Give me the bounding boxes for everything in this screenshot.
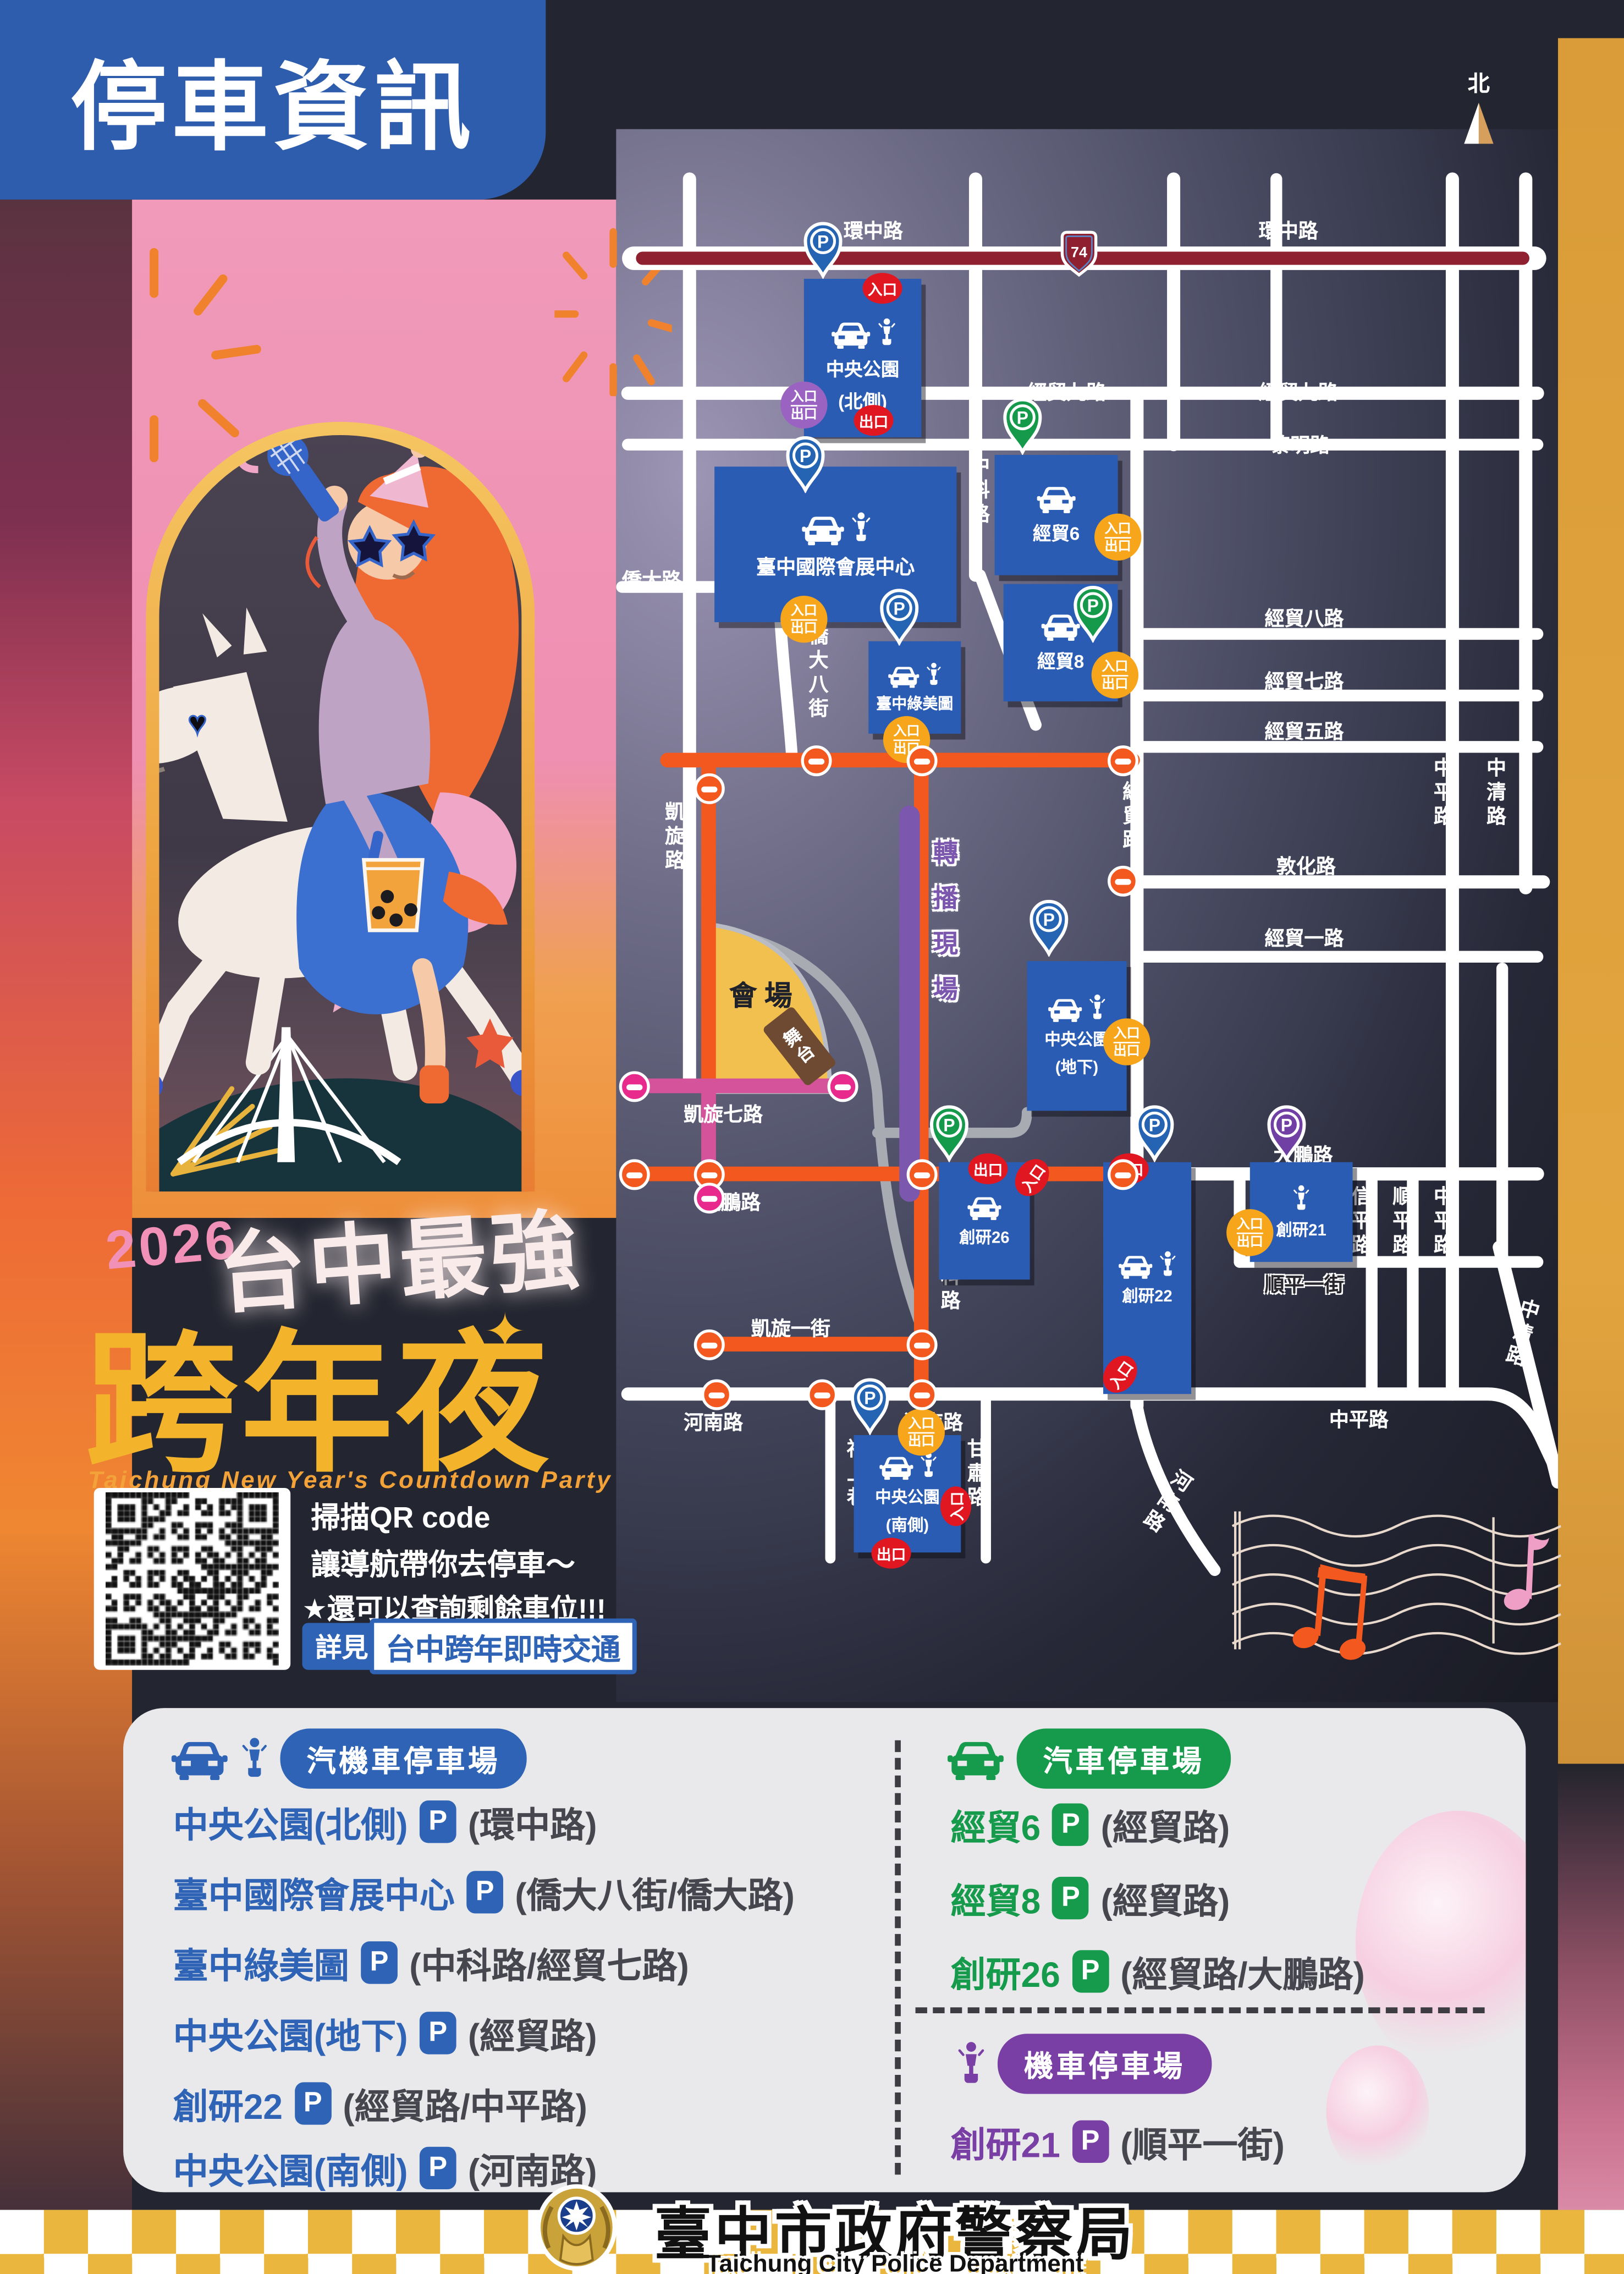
legend-item: 中央公園(地下) P (經貿路) (173, 2007, 597, 2058)
road-label: 河南路 (684, 1406, 743, 1435)
road-label: 環中路 (844, 214, 903, 243)
road-label: 中平路 (1426, 1185, 1455, 1258)
legend-divider-horizontal (916, 2007, 1485, 2013)
newyear-illustration: ♥ (132, 200, 616, 1218)
north-indicator: 北 (1452, 68, 1505, 151)
parking-pin-blue: P (848, 1376, 892, 1435)
footer-organization-en: Taichung City Police Department (616, 2251, 1174, 2274)
broadcast-label: 轉播現場 (924, 839, 961, 1021)
right-gold-band (1558, 38, 1624, 1764)
road-label: 中平路 (1329, 1403, 1389, 1432)
scooter-icon (926, 661, 942, 688)
pink-blob (1356, 1811, 1526, 2075)
rider-boot (420, 1065, 449, 1103)
scooter-icon (240, 1735, 268, 1782)
road-label: 中科路 (962, 455, 992, 528)
entrance-badge: 入口 (863, 273, 902, 304)
p-badge: P (420, 1800, 456, 1843)
svg-text:P: P (817, 232, 829, 251)
svg-text:P: P (1149, 1115, 1160, 1135)
map-roads (616, 129, 1558, 1702)
svg-text:P: P (864, 1388, 876, 1408)
qr-instruction-1: 掃描QR code (311, 1494, 491, 1536)
no-entry-pink-icon (694, 1183, 725, 1213)
road-label: 凱旋七路 (684, 1097, 763, 1127)
svg-text:P: P (1087, 596, 1099, 616)
legend-item: 創研21 P (順平一街) (951, 2116, 1285, 2167)
scooter-icon (956, 2039, 986, 2089)
firework-small-icon (282, 220, 378, 326)
exit-badge: 出口 (854, 405, 894, 436)
parking-pin-blue: P (877, 587, 921, 646)
car-icon (878, 1454, 913, 1481)
road-label: 經貿路 (1115, 781, 1144, 853)
no-entry-icon (907, 1380, 938, 1410)
scooter-icon (1159, 1249, 1176, 1278)
pink-note-icon (1501, 1535, 1549, 1613)
no-entry-pink-icon (619, 1071, 650, 1102)
p-badge: P (466, 1871, 503, 1913)
streamer-icon (479, 279, 496, 343)
parking-pin-green: P (927, 1103, 971, 1162)
entrance-exit-badge: 入口出口 (1092, 651, 1138, 698)
no-entry-icon (1108, 1159, 1138, 1190)
no-entry-icon (801, 745, 832, 776)
left-gradient-band (0, 200, 132, 2210)
p-badge: P (1053, 1803, 1089, 1845)
parking-pin-blue: P (1132, 1103, 1176, 1162)
legend-car-title: 汽車停車場 (1017, 1728, 1231, 1788)
road-label: 中清路 (1479, 757, 1508, 830)
legend-item: 中央公園(北側) P (環中路) (173, 1796, 597, 1847)
road-label: 經貿九路 (1259, 376, 1338, 405)
legend-item: 創研26 P (經貿路/大鵬路) (951, 1946, 1365, 1997)
scooter-icon (877, 317, 896, 349)
expressway-shield: 74 (1059, 229, 1099, 277)
road-label: 凱旋路 (657, 801, 686, 874)
road-label: 經貿八路 (1264, 602, 1344, 631)
road-label: 順平一街 (1264, 1268, 1344, 1297)
p-badge: P (420, 2147, 456, 2189)
svg-text:P: P (800, 446, 811, 466)
p-badge: P (1053, 1877, 1089, 1919)
entrance-exit-badge: 入口出口 (780, 382, 827, 429)
legend-moto-header: 機車停車場 (956, 2034, 1212, 2094)
car-icon (830, 320, 871, 349)
legend-item: 經貿6 P (經貿路) (951, 1799, 1230, 1850)
road-label: 經貿一路 (1264, 921, 1344, 951)
no-entry-icon (907, 745, 938, 776)
legend-item: 經貿8 P (經貿路) (951, 1872, 1230, 1924)
entrance-exit-badge: 入口出口 (780, 596, 827, 642)
car-icon (946, 1737, 1005, 1781)
parking-pin-blue: P (783, 435, 827, 493)
entrance-badge: 入口 (940, 1486, 971, 1526)
scooter-icon (850, 510, 871, 545)
p-badge: P (361, 1941, 398, 1984)
qr-instruction-2: 讓導航帶你去停車～ (311, 1541, 575, 1583)
no-entry-icon (701, 1380, 732, 1410)
no-entry-icon (619, 1159, 650, 1190)
police-badge-icon (531, 2183, 622, 2271)
p-badge: P (1072, 2121, 1109, 2163)
entrance-exit-badge: 入口出口 (1226, 1209, 1273, 1256)
legend-combined-header: 汽機車停車場 (170, 1728, 526, 1788)
title-block: 停車資訊 (0, 0, 546, 200)
no-entry-icon (694, 1330, 725, 1360)
parking-pin-blue: P (801, 220, 845, 279)
sparkle-icon: ✦ (484, 1303, 526, 1362)
no-entry-icon (694, 773, 725, 804)
road-label: 順平路 (1385, 1185, 1414, 1258)
car-icon (1118, 1253, 1153, 1279)
parking-pin-green: P (1000, 396, 1044, 455)
car-icon (170, 1737, 229, 1781)
no-entry-icon (907, 1330, 938, 1360)
svg-text:P: P (1017, 408, 1028, 428)
moon-icon (395, 273, 454, 330)
lot-jingmao6: 經貿6 (995, 455, 1118, 575)
exit-badge: 出口 (968, 1154, 1008, 1184)
parking-pin-purple: P (1264, 1103, 1308, 1162)
no-entry-icon (1108, 866, 1138, 897)
firework-icon (132, 252, 257, 458)
scooter-icon (1292, 1183, 1310, 1212)
svg-text:74: 74 (1071, 244, 1087, 260)
road-label: 僑大路 (622, 563, 681, 592)
exit-badge: 出口 (872, 1538, 911, 1569)
music-staff-icon (1229, 1508, 1561, 1673)
traffic-info-link[interactable]: 台中跨年即時交通 (370, 1618, 637, 1674)
svg-text:P: P (943, 1115, 955, 1135)
legend-combined-title: 汽機車停車場 (280, 1728, 527, 1788)
no-entry-icon (1108, 745, 1138, 776)
right-pink-band (1558, 1764, 1624, 2210)
road-label: 環中路 (1259, 214, 1318, 243)
road-label: 黎明路 (1270, 429, 1330, 458)
road-label: 敦化路 (1276, 850, 1336, 879)
scooter-icon (1088, 993, 1106, 1023)
svg-text:P: P (1043, 910, 1055, 930)
no-entry-icon (807, 1380, 838, 1410)
page-title: 停車資訊 (70, 29, 475, 170)
parking-pin-blue: P (1027, 898, 1071, 957)
north-arrow-icon (1461, 101, 1496, 145)
entrance-exit-badge: 入口出口 (898, 1409, 945, 1455)
road-label: 凱旋一街 (751, 1312, 830, 1341)
no-entry-pink-icon (828, 1071, 858, 1102)
car-icon (1048, 996, 1083, 1023)
north-label: 北 (1452, 68, 1505, 98)
no-entry-icon (907, 1159, 938, 1190)
svg-text:P: P (894, 598, 905, 618)
car-icon (800, 513, 844, 545)
entrance-exit-badge: 入口出口 (1103, 1018, 1150, 1065)
parking-info-poster: 停車資訊 (0, 0, 1624, 2274)
pink-blob (1326, 2046, 1429, 2178)
p-badge: P (294, 2082, 331, 2124)
car-icon (1036, 484, 1077, 513)
svg-text:P: P (1281, 1115, 1292, 1135)
p-badge: P (420, 2012, 456, 2054)
road-label: 經貿五路 (1264, 715, 1344, 744)
heart-eye-icon: ♥ (188, 705, 207, 741)
legend-item: 創研22 P (經貿路/中平路) (173, 2078, 587, 2129)
entrance-exit-badge: 入口出口 (1094, 514, 1141, 561)
legend-item: 臺中綠美圖 P (中科路/經貿七路) (173, 1937, 689, 1988)
car-icon (888, 664, 920, 688)
road-label: 經貿七路 (1264, 664, 1344, 694)
qr-canvas (106, 1492, 279, 1666)
legend-divider-vertical (895, 1740, 901, 2175)
legend-item: 臺中國際會展中心 P (僑大八街/僑大路) (173, 1866, 795, 1918)
parking-pin-green: P (1071, 584, 1115, 643)
legend-car-header: 汽車停車場 (946, 1728, 1231, 1788)
road-label: 中平路 (1426, 757, 1455, 830)
car-icon (967, 1194, 1002, 1220)
poster-outer: 停車資訊 (0, 0, 1624, 2274)
qr-code (94, 1488, 290, 1670)
legend-moto-title: 機車停車場 (998, 2034, 1212, 2094)
p-badge: P (1072, 1950, 1109, 1992)
